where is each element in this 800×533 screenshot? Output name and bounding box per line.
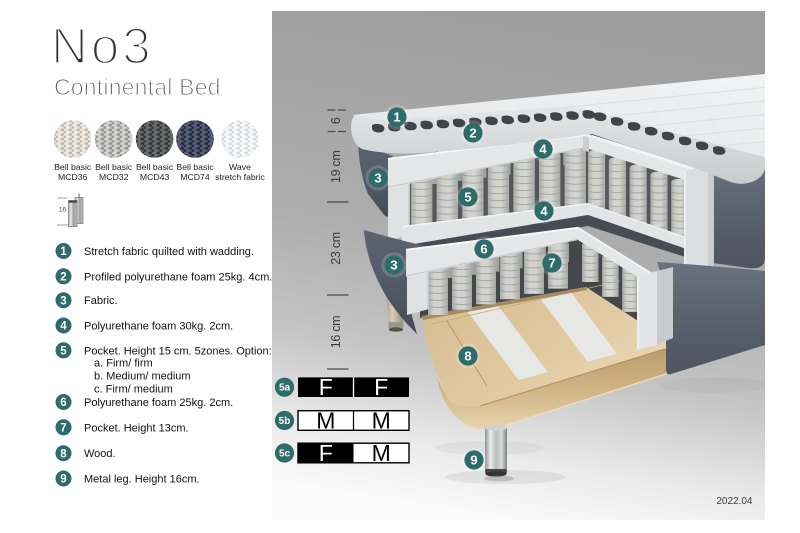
svg-text:M: M — [372, 440, 391, 466]
svg-text:Bell basic: Bell basic — [54, 162, 92, 172]
svg-text:6: 6 — [60, 397, 66, 409]
svg-text:Bell basic: Bell basic — [95, 162, 133, 172]
svg-text:stretch fabric: stretch fabric — [215, 172, 265, 182]
svg-text:Polyurethane foam 30kg. 2cm.: Polyurethane foam 30kg. 2cm. — [84, 321, 233, 333]
svg-text:3: 3 — [60, 295, 66, 307]
svg-text:Polyurethane foam 25kg. 2cm.: Polyurethane foam 25kg. 2cm. — [84, 397, 233, 409]
svg-text:3: 3 — [374, 171, 381, 186]
svg-text:8: 8 — [464, 349, 471, 364]
svg-text:F: F — [319, 374, 333, 400]
svg-text:Continental Bed: Continental Bed — [54, 74, 221, 100]
svg-text:F: F — [374, 374, 388, 400]
svg-text:4: 4 — [60, 321, 67, 333]
svg-text:3: 3 — [390, 258, 397, 273]
svg-text:Bell basic: Bell basic — [136, 162, 174, 172]
svg-text:Wood.: Wood. — [84, 448, 116, 460]
svg-text:2: 2 — [60, 271, 66, 283]
svg-text:19 cm: 19 cm — [329, 151, 343, 184]
svg-text:4: 4 — [540, 204, 548, 219]
svg-text:Wave: Wave — [229, 162, 251, 172]
svg-text:Bell basic: Bell basic — [176, 162, 214, 172]
svg-text:5c: 5c — [279, 448, 291, 459]
svg-text:Metal leg. Height 16cm.: Metal leg. Height 16cm. — [84, 474, 200, 486]
svg-text:5a: 5a — [279, 383, 291, 394]
svg-text:c. Firm/ medium: c. Firm/ medium — [94, 383, 173, 395]
svg-text:5b: 5b — [279, 416, 291, 427]
svg-text:6: 6 — [329, 117, 343, 124]
svg-text:1: 1 — [393, 110, 400, 125]
svg-text:a. Firm/ firm: a. Firm/ firm — [94, 358, 153, 370]
svg-text:2022.04: 2022.04 — [716, 496, 753, 507]
svg-text:4: 4 — [539, 142, 547, 157]
svg-text:No3: No3 — [51, 18, 154, 75]
svg-text:5: 5 — [60, 345, 67, 357]
svg-text:6: 6 — [480, 242, 487, 257]
svg-text:Pocket. Height 15 cm. 5zones.: Pocket. Height 15 cm. 5zones. Option: — [84, 345, 272, 357]
svg-text:5: 5 — [464, 190, 471, 205]
svg-text:7: 7 — [548, 256, 555, 271]
svg-text:Pocket. Height 13cm.: Pocket. Height 13cm. — [84, 422, 189, 434]
svg-text:MCD74: MCD74 — [180, 172, 210, 182]
svg-text:9: 9 — [470, 453, 477, 468]
svg-text:7: 7 — [60, 422, 66, 434]
svg-text:23 cm: 23 cm — [329, 232, 343, 265]
svg-text:Fabric.: Fabric. — [84, 295, 118, 307]
svg-text:MCD43: MCD43 — [140, 172, 170, 182]
svg-text:8: 8 — [60, 448, 67, 460]
svg-text:16 cm: 16 cm — [329, 316, 343, 349]
svg-text:M: M — [316, 408, 335, 434]
svg-text:MCD32: MCD32 — [99, 172, 129, 182]
svg-text:Profiled polyurethane foam 25k: Profiled polyurethane foam 25kg. 4cm. — [84, 271, 272, 283]
svg-text:M: M — [372, 408, 391, 434]
svg-text:2: 2 — [469, 126, 476, 141]
svg-text:16: 16 — [59, 207, 67, 214]
svg-text:Stretch fabric quilted with wa: Stretch fabric quilted with wadding. — [84, 246, 254, 258]
svg-text:F: F — [319, 440, 333, 466]
svg-text:MCD36: MCD36 — [58, 172, 88, 182]
svg-text:b. Medium/ medium: b. Medium/ medium — [94, 371, 191, 383]
svg-text:9: 9 — [60, 474, 66, 486]
svg-text:1: 1 — [60, 246, 67, 258]
